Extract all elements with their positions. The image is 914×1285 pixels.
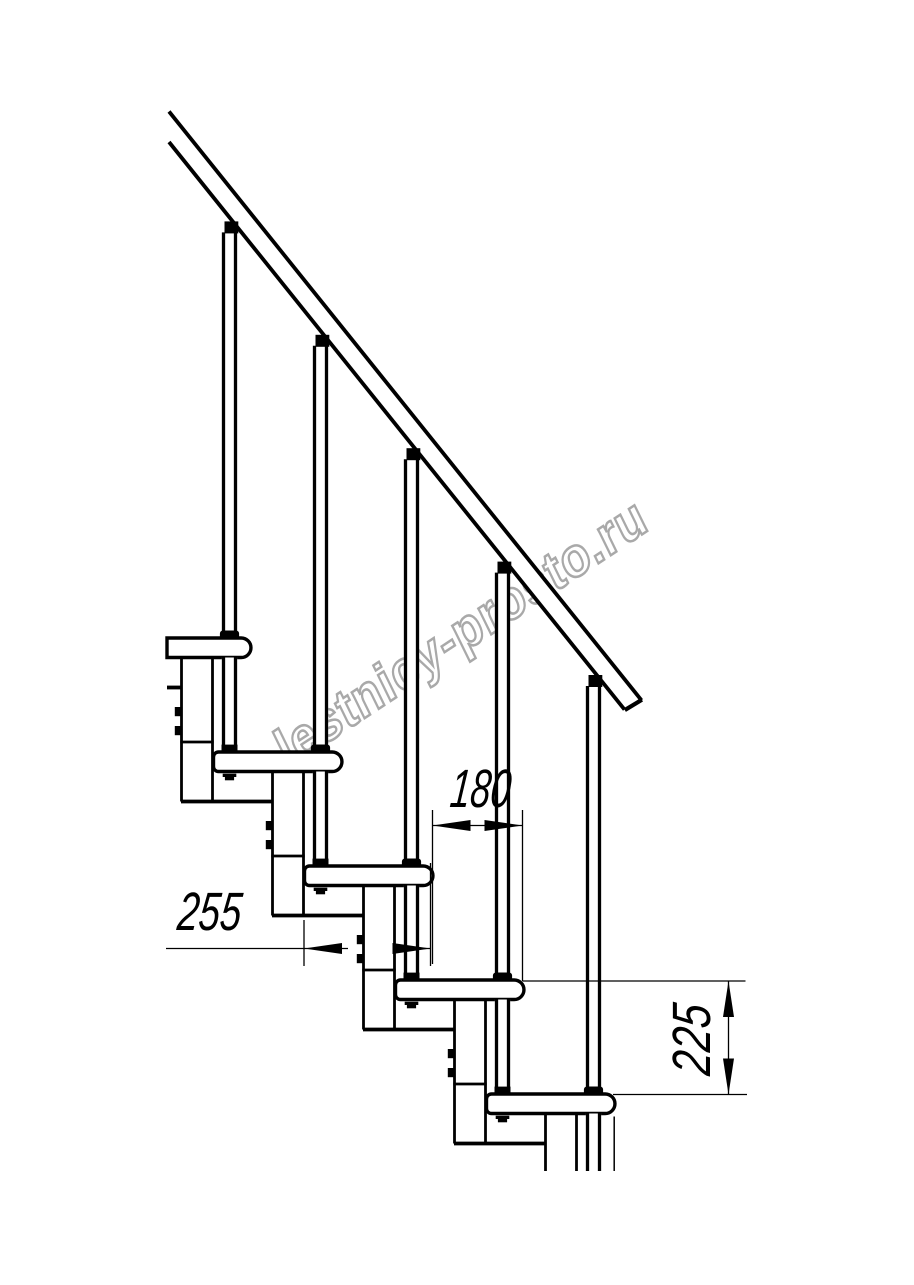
svg-text:225: 225 [662, 1000, 722, 1079]
svg-text:255: 255 [174, 882, 245, 942]
svg-text:180: 180 [448, 758, 515, 819]
